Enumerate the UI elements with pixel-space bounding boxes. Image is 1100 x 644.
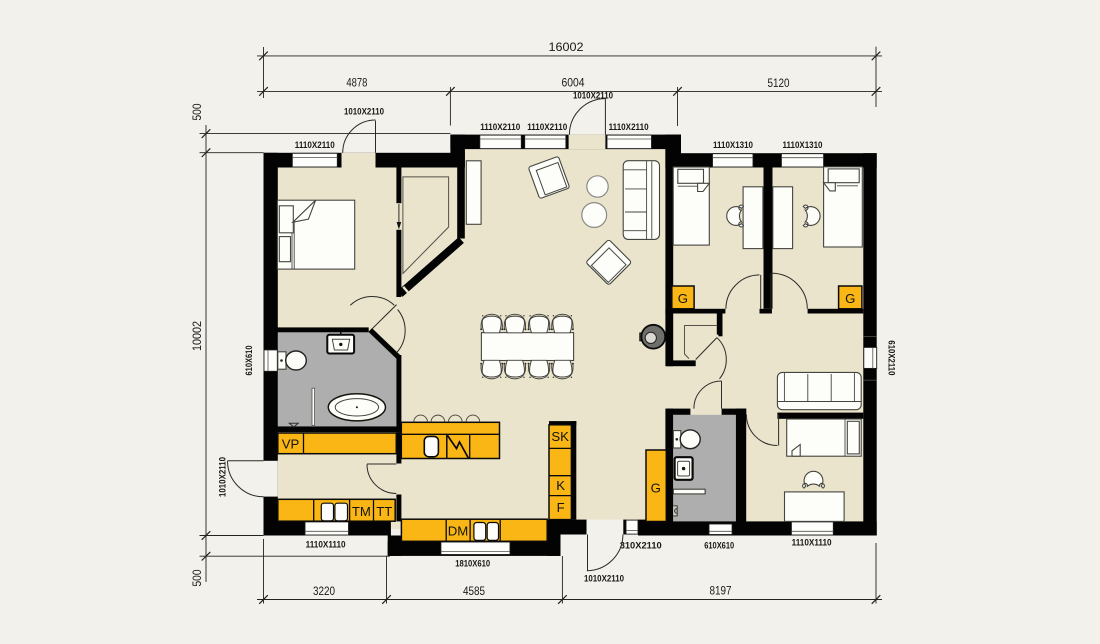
svg-text:1110X1310: 1110X1310 [783, 140, 823, 151]
svg-text:G: G [845, 291, 855, 306]
svg-text:1110X1110: 1110X1110 [306, 540, 346, 551]
svg-text:1110X1110: 1110X1110 [792, 538, 832, 549]
svg-text:1010X2110: 1010X2110 [584, 574, 624, 585]
svg-text:1110X2110: 1110X2110 [527, 122, 567, 133]
svg-text:1010X2110: 1010X2110 [344, 106, 384, 117]
svg-text:G: G [678, 291, 688, 306]
svg-text:F: F [557, 500, 565, 515]
svg-text:VP: VP [282, 436, 300, 451]
svg-text:500: 500 [190, 103, 204, 120]
svg-text:4878: 4878 [346, 76, 367, 90]
svg-text:5120: 5120 [768, 76, 790, 90]
svg-text:610X2110: 610X2110 [886, 340, 897, 375]
svg-text:1010X2110: 1010X2110 [573, 91, 613, 102]
svg-text:K: K [556, 478, 565, 493]
svg-text:1110X1310: 1110X1310 [713, 140, 753, 151]
svg-text:310X2110: 310X2110 [620, 541, 662, 552]
svg-text:DM: DM [448, 524, 469, 539]
svg-text:1810X610: 1810X610 [455, 559, 490, 570]
svg-text:1110X2110: 1110X2110 [295, 140, 335, 151]
svg-text:10002: 10002 [190, 321, 204, 351]
svg-text:8197: 8197 [710, 584, 732, 598]
svg-text:1110X2110: 1110X2110 [480, 122, 520, 133]
svg-text:16002: 16002 [549, 40, 584, 54]
svg-text:1010X2110: 1010X2110 [218, 457, 229, 497]
svg-text:TT: TT [376, 504, 392, 519]
svg-text:TM: TM [352, 504, 371, 519]
svg-text:610X610: 610X610 [704, 541, 734, 552]
svg-text:3220: 3220 [313, 584, 335, 598]
svg-text:G: G [651, 480, 661, 495]
svg-text:SK: SK [551, 429, 569, 444]
svg-text:610X610: 610X610 [244, 346, 255, 376]
svg-text:1110X2110: 1110X2110 [609, 122, 649, 133]
svg-text:500: 500 [190, 569, 204, 586]
svg-text:4585: 4585 [463, 584, 485, 598]
svg-text:6004: 6004 [562, 76, 585, 90]
